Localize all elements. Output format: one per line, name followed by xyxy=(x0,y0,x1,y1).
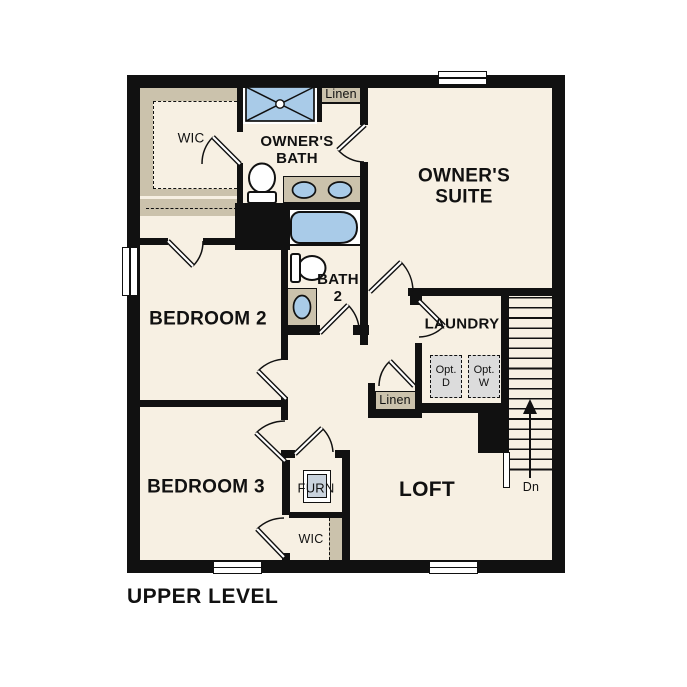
optional-dryer-label: Opt. D xyxy=(436,364,457,389)
window xyxy=(213,561,262,574)
optional-washer-box: Opt. W xyxy=(468,355,500,398)
floor-plan: Opt. D Opt. W WIC OWNER'S BATH Linen OWN… xyxy=(0,0,687,687)
wall-segment xyxy=(478,403,509,453)
tub-platform xyxy=(288,209,360,245)
wall-segment xyxy=(235,203,290,250)
page-title: UPPER LEVEL xyxy=(127,585,278,609)
wall-segment xyxy=(317,88,322,122)
label-owners-bath: OWNER'S BATH xyxy=(260,134,333,168)
wall-segment xyxy=(237,88,243,132)
label-owners-wic: WIC xyxy=(178,130,205,145)
shower-platform xyxy=(243,84,317,124)
wall-segment xyxy=(282,325,320,335)
window-mullion xyxy=(214,567,261,569)
window xyxy=(122,247,138,296)
wall-segment xyxy=(282,553,290,562)
window-mullion xyxy=(129,248,131,295)
stair-railing xyxy=(503,452,510,488)
label-linen-lower: Linen xyxy=(379,393,411,407)
window-mullion xyxy=(439,77,486,79)
window-mullion xyxy=(430,567,477,569)
label-owners-suite: OWNER'S SUITE xyxy=(418,166,510,209)
optional-washer-label: Opt. W xyxy=(474,364,495,389)
wall-segment xyxy=(501,296,509,407)
wall-segment xyxy=(410,296,422,305)
label-laundry: LAUNDRY xyxy=(425,317,500,334)
wall-segment xyxy=(408,288,552,296)
wall-segment xyxy=(335,450,350,458)
wall-segment xyxy=(140,238,168,245)
label-stairs-down: Dn xyxy=(523,480,539,494)
wall-outer-bottom xyxy=(127,560,565,573)
wall-segment xyxy=(368,410,422,418)
window xyxy=(438,71,487,85)
wall-segment xyxy=(360,162,368,345)
label-furnace: FURN xyxy=(298,482,335,497)
wall-segment xyxy=(283,203,368,210)
wall-segment xyxy=(288,244,362,246)
window xyxy=(429,561,478,574)
stairs-arrow-head xyxy=(523,399,537,414)
bedroom3-wic-shelf xyxy=(329,518,342,560)
wall-segment xyxy=(140,400,288,407)
shelf-dashed-line xyxy=(146,208,237,209)
label-linen-upper: Linen xyxy=(325,87,357,101)
wall-segment xyxy=(237,163,243,203)
label-bedroom-3: BEDROOM 3 xyxy=(147,476,265,497)
wall-segment xyxy=(281,250,288,360)
bedroom2-closet-shelf xyxy=(140,199,237,216)
wall-outer-right xyxy=(552,75,565,573)
wall-segment xyxy=(289,512,350,518)
bath2-vanity-counter xyxy=(287,288,317,326)
wall-segment xyxy=(415,343,422,410)
owners-vanity-counter xyxy=(283,176,363,203)
label-bath-2: BATH 2 xyxy=(317,272,359,306)
wall-segment xyxy=(342,450,350,560)
wall-segment xyxy=(360,88,368,125)
optional-dryer-box: Opt. D xyxy=(430,355,462,398)
wall-segment xyxy=(281,450,295,458)
stairs-arrow-line xyxy=(529,412,531,478)
wall-segment xyxy=(282,460,290,515)
label-bedroom3-wic: WIC xyxy=(299,532,324,546)
wall-segment xyxy=(353,325,369,335)
wall-outer-left xyxy=(127,75,140,573)
label-bedroom-2: BEDROOM 2 xyxy=(149,308,267,329)
label-loft: LOFT xyxy=(399,478,455,502)
